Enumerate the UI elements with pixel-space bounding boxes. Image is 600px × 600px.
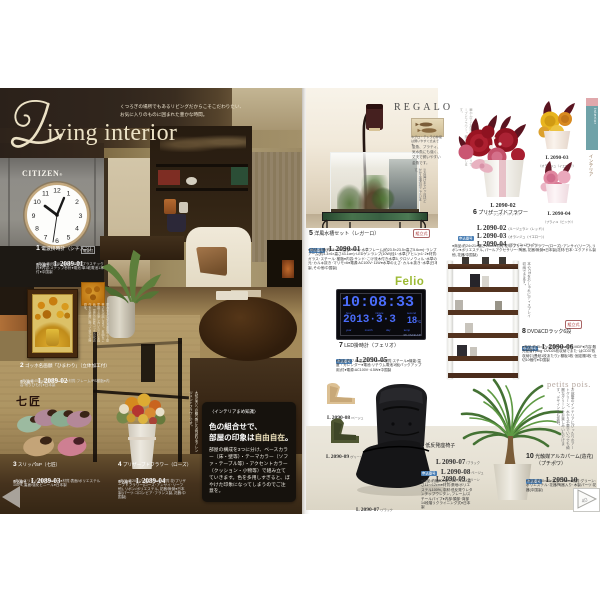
svg-text:8: 8	[35, 226, 39, 233]
svg-text:6: 6	[55, 238, 59, 245]
svg-text:2: 2	[75, 199, 79, 206]
svg-text:10: 10	[33, 199, 41, 206]
svg-text:9: 9	[32, 213, 36, 220]
svg-text:5: 5	[67, 235, 71, 242]
svg-text:12: 12	[53, 188, 61, 195]
svg-text:4: 4	[75, 226, 79, 233]
svg-text:1: 1	[67, 191, 71, 198]
svg-text:7: 7	[44, 235, 48, 242]
svg-text:3: 3	[79, 213, 83, 220]
svg-text:11: 11	[42, 191, 49, 198]
